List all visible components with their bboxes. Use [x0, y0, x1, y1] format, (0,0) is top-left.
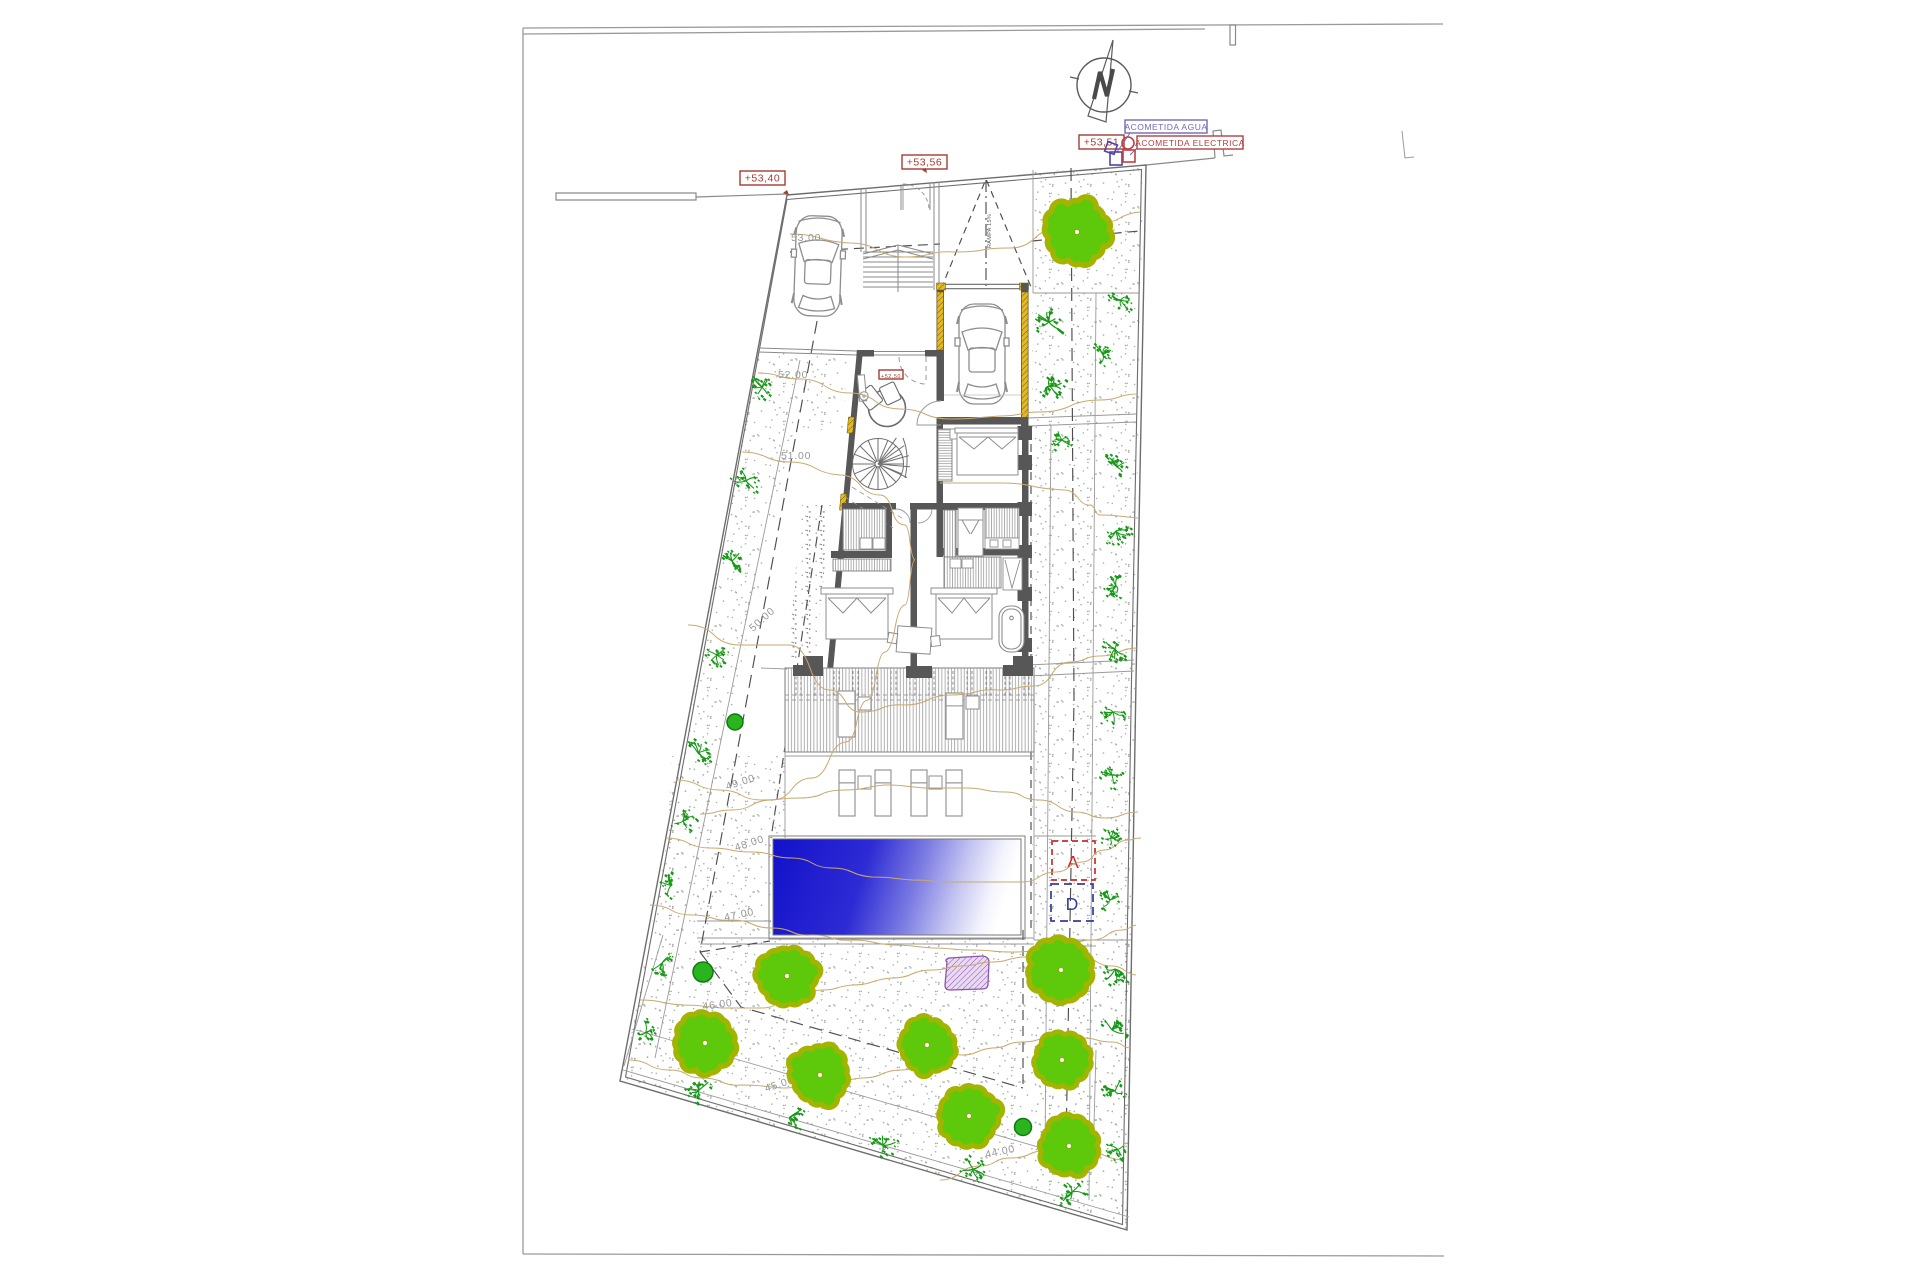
svg-text:+53,51: +53,51	[1084, 137, 1119, 149]
svg-text:+53,40: +53,40	[745, 173, 780, 185]
svg-text:D: D	[1066, 894, 1079, 914]
svg-text:53.00: 53.00	[791, 232, 821, 244]
svg-text:51.00: 51.00	[781, 450, 811, 462]
svg-text:+53,56: +53,56	[907, 157, 942, 169]
svg-text:ACOMETIDA AGUA: ACOMETIDA AGUA	[1124, 122, 1207, 132]
svg-text:ACOMETIDA ELECTRICA: ACOMETIDA ELECTRICA	[1135, 138, 1245, 148]
svg-text:52.00: 52.00	[778, 369, 808, 381]
svg-text:RAMPA 15%: RAMPA 15%	[987, 214, 993, 248]
svg-text:+52,50: +52,50	[881, 374, 901, 380]
